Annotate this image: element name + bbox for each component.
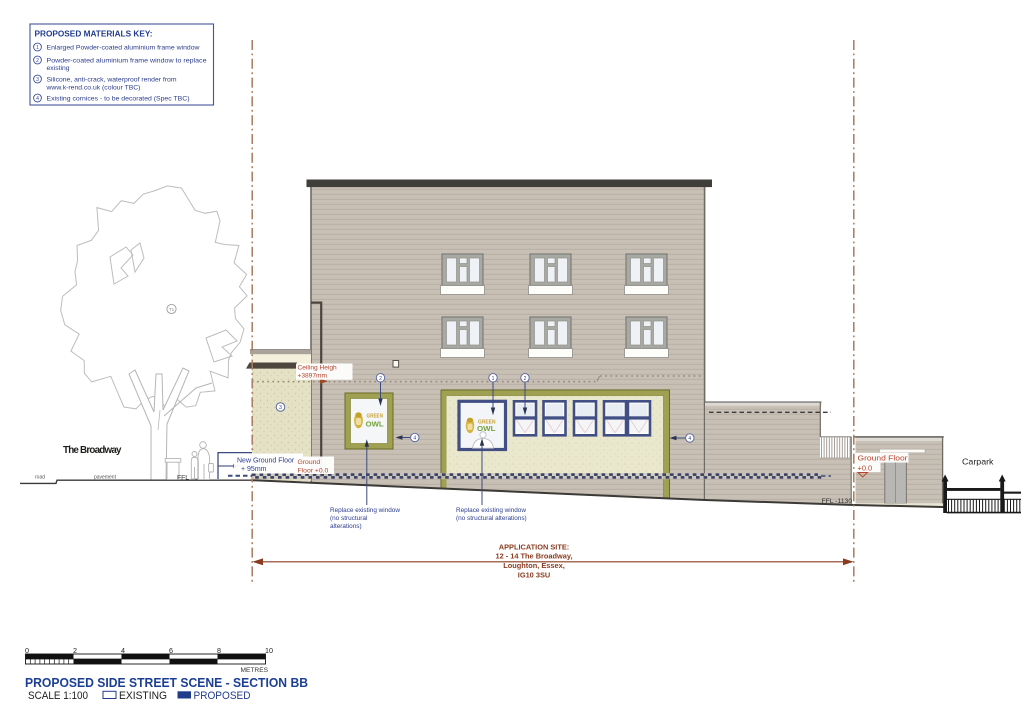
svg-text:OWL: OWL [366, 419, 384, 428]
svg-text:APPLICATION SITE:: APPLICATION SITE: [499, 542, 570, 551]
svg-text:OWL: OWL [477, 424, 496, 433]
svg-text:8: 8 [217, 646, 221, 655]
svg-text:4: 4 [688, 436, 691, 442]
svg-text:2: 2 [379, 376, 382, 382]
svg-text:(no structural alterations): (no structural alterations) [456, 515, 527, 522]
svg-text:Replace existing window: Replace existing window [456, 507, 526, 514]
svg-text:T1: T1 [169, 307, 175, 312]
svg-text:Silicone, anti-crack, waterpro: Silicone, anti-crack, waterproof render … [47, 77, 177, 84]
svg-text:Carpark: Carpark [962, 457, 994, 467]
svg-text:+ 95mm: + 95mm [241, 466, 267, 473]
svg-text:4: 4 [413, 436, 416, 442]
svg-text:EXISTING: EXISTING [119, 690, 167, 702]
svg-text:3: 3 [36, 77, 39, 83]
svg-text:existing: existing [47, 65, 70, 72]
svg-text:Floor +0.0: Floor +0.0 [298, 467, 329, 474]
svg-text:4: 4 [121, 646, 125, 655]
svg-text:Ground Floor: Ground Floor [858, 453, 909, 462]
svg-text:FFL -1130: FFL -1130 [822, 498, 853, 505]
svg-text:2: 2 [36, 58, 39, 64]
svg-text:3: 3 [279, 405, 282, 411]
svg-text:12 - 14 The Broadway,: 12 - 14 The Broadway, [495, 552, 572, 561]
svg-text:The Broadway: The Broadway [63, 445, 122, 456]
svg-text:6: 6 [169, 646, 173, 655]
svg-text:Powder-coated aluminium frame: Powder-coated aluminium frame window to … [47, 57, 207, 64]
svg-text:New Ground Floor: New Ground Floor [237, 458, 295, 465]
svg-text:alterations): alterations) [330, 523, 362, 530]
svg-text:1: 1 [36, 45, 39, 51]
svg-text:+0.0: +0.0 [858, 464, 873, 473]
svg-text:PROPOSED: PROPOSED [194, 690, 251, 702]
svg-text:Enlarged Powder-coated alumini: Enlarged Powder-coated aluminium frame w… [47, 45, 200, 52]
svg-text:+3897mm: +3897mm [298, 373, 328, 380]
svg-text:PROPOSED SIDE STREET SCENE - S: PROPOSED SIDE STREET SCENE - SECTION BB [25, 675, 308, 690]
svg-text:pavement: pavement [94, 475, 117, 481]
svg-text:Ground: Ground [298, 459, 321, 466]
svg-text:0: 0 [25, 646, 29, 655]
svg-text:2: 2 [73, 646, 77, 655]
svg-text:www.k-rend.co.uk (colour TBC): www.k-rend.co.uk (colour TBC) [46, 84, 141, 91]
svg-text:PROPOSED MATERIALS KEY:: PROPOSED MATERIALS KEY: [35, 29, 153, 39]
svg-text:1: 1 [492, 376, 495, 382]
svg-text:road: road [35, 475, 45, 481]
svg-text:Existing cornices - to be deco: Existing cornices - to be decorated (Spe… [47, 96, 190, 103]
svg-text:SCALE 1:100: SCALE 1:100 [28, 690, 88, 702]
svg-text:IG10 3SU: IG10 3SU [518, 570, 550, 579]
svg-text:4: 4 [36, 96, 39, 102]
svg-text:10: 10 [265, 646, 273, 655]
svg-text:Ceiling Heigh: Ceiling Heigh [298, 365, 338, 372]
svg-text:Loughton, Essex,: Loughton, Essex, [503, 561, 565, 570]
svg-text:Replace existing window: Replace existing window [330, 507, 400, 514]
svg-text:2: 2 [524, 376, 527, 382]
svg-text:METRES: METRES [241, 667, 269, 674]
svg-text:(no structural: (no structural [330, 515, 367, 522]
